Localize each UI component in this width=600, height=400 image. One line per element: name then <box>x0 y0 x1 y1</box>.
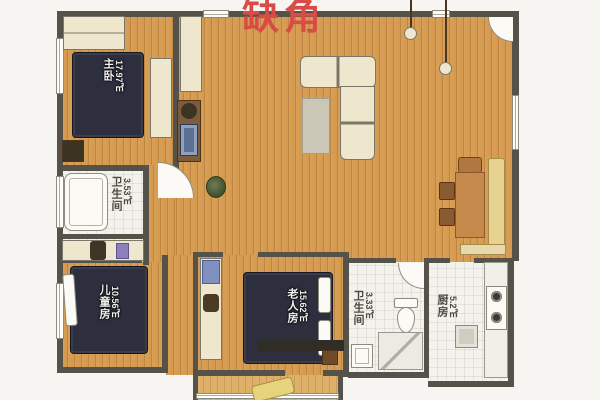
dining-table-icon <box>455 172 485 238</box>
pendant-lamp-a-icon <box>404 27 417 40</box>
annotation-title: 缺角 <box>242 0 326 40</box>
wall-bottom-left <box>57 367 167 373</box>
utility-item-icon <box>90 241 106 260</box>
dining-chair-left1-icon <box>439 182 455 200</box>
dining-chair-left2-icon <box>439 208 455 226</box>
pendant-cord-b-icon <box>445 0 447 62</box>
pendant-cord-a-icon <box>410 0 412 28</box>
dresser-mirror-icon <box>202 260 220 284</box>
elder-pillow-top-icon <box>318 277 331 313</box>
wall-elder-top-b <box>258 252 348 257</box>
washbasin-icon <box>351 344 373 368</box>
wall-elder-right <box>343 252 349 377</box>
master-bed-icon <box>72 52 144 138</box>
wall-below-master <box>57 165 149 171</box>
kids-bed-icon <box>70 266 148 354</box>
hall-cabinet-icon <box>180 16 202 92</box>
master-wardrobe-icon <box>63 16 125 50</box>
bathtub-icon <box>64 173 108 231</box>
stool-icon <box>203 294 219 312</box>
wall-kitchen-right <box>508 258 514 386</box>
sideboard-icon <box>460 244 506 255</box>
wall-kids-right <box>162 255 168 373</box>
top-wall-window-a <box>203 10 229 18</box>
floorplan-image: 主卧 17.97㎡ 卫生间 3.53㎡ 儿童房 10.56㎡ 老人房 15.62… <box>0 0 600 400</box>
bathroom-left-window <box>56 176 64 228</box>
tv-icon <box>180 124 198 156</box>
wall-bath2-kitchen-divider <box>424 258 429 378</box>
master-desk-icon <box>62 140 84 162</box>
plant-icon <box>206 176 226 198</box>
rug-icon <box>302 98 330 154</box>
elder-nightstand-icon <box>322 350 338 365</box>
master-closet-icon <box>150 58 172 138</box>
wall-elder-bottom-b <box>323 370 348 376</box>
stove-burner-bottom-icon <box>491 312 502 323</box>
pendant-lamp-b-icon <box>439 62 452 75</box>
top-wall-window-b <box>432 10 450 18</box>
kitchen-sink-icon <box>455 325 478 348</box>
dining-bench-icon <box>488 158 505 246</box>
wall-bath2-top-a <box>349 258 396 263</box>
wall-elder-left <box>193 252 198 377</box>
sofa-back-icon <box>300 56 376 88</box>
decor-bowl-icon <box>181 103 197 119</box>
right-wall-window <box>512 95 519 150</box>
sofa-chaise-icon <box>340 86 375 160</box>
shower-icon <box>378 332 423 370</box>
wall-bath2-bottom <box>348 372 429 378</box>
wall-kitchen-bottom <box>428 381 514 387</box>
dining-chair-top-icon <box>458 157 482 173</box>
wall-below-bath-left <box>57 234 149 239</box>
laundry-basket-icon <box>116 243 129 259</box>
stove-burner-top-icon <box>491 291 502 302</box>
wall-elder-bottom-a <box>193 370 285 376</box>
